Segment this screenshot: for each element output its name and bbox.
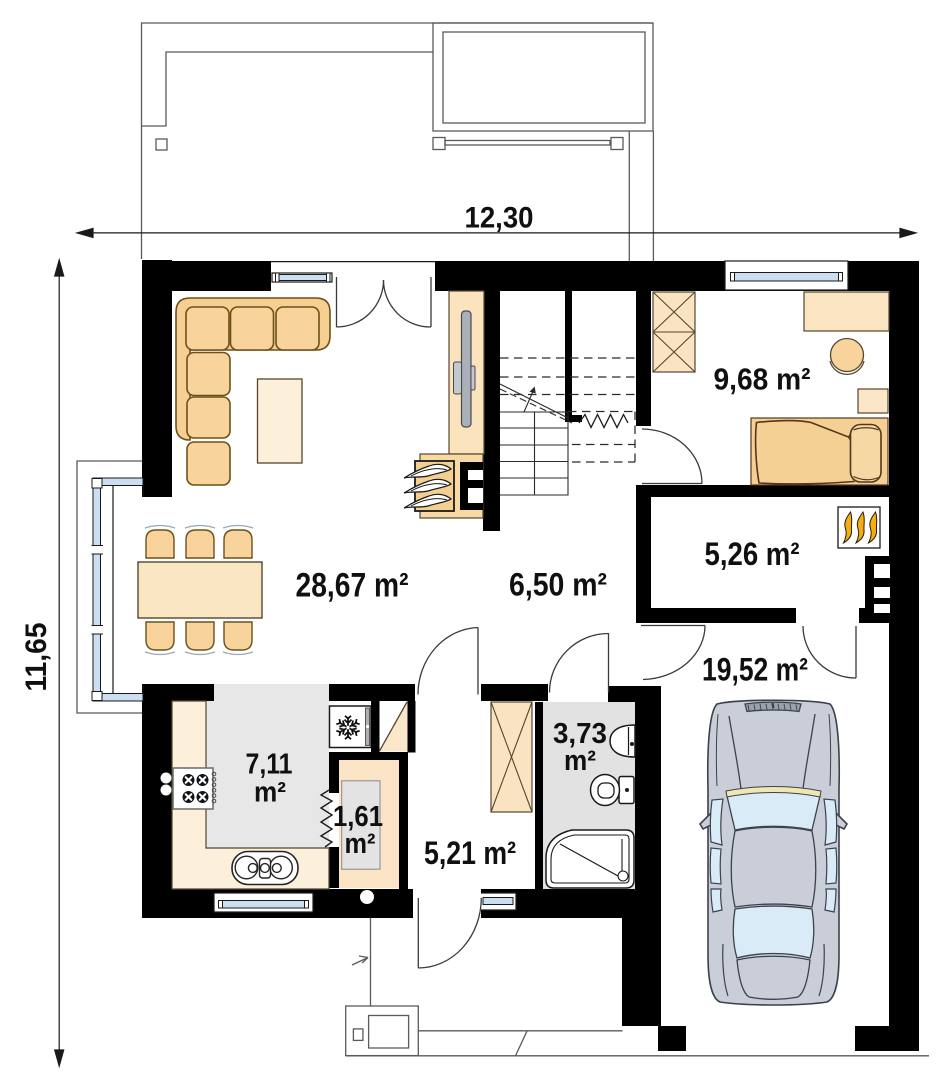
svg-text:12,30: 12,30 xyxy=(465,202,534,235)
svg-text:9,68 m²: 9,68 m² xyxy=(714,362,811,397)
svg-text:6,50 m²: 6,50 m² xyxy=(509,567,607,603)
svg-text:5,26 m²: 5,26 m² xyxy=(705,536,800,572)
svg-text:28,67 m²: 28,67 m² xyxy=(296,567,409,605)
svg-text:m²: m² xyxy=(345,828,376,860)
svg-text:m²: m² xyxy=(254,777,286,809)
svg-text:m²: m² xyxy=(564,745,596,777)
svg-text:19,52 m²: 19,52 m² xyxy=(702,652,808,688)
svg-text:5,21 m²: 5,21 m² xyxy=(424,835,516,871)
svg-text:11,65: 11,65 xyxy=(20,623,53,692)
